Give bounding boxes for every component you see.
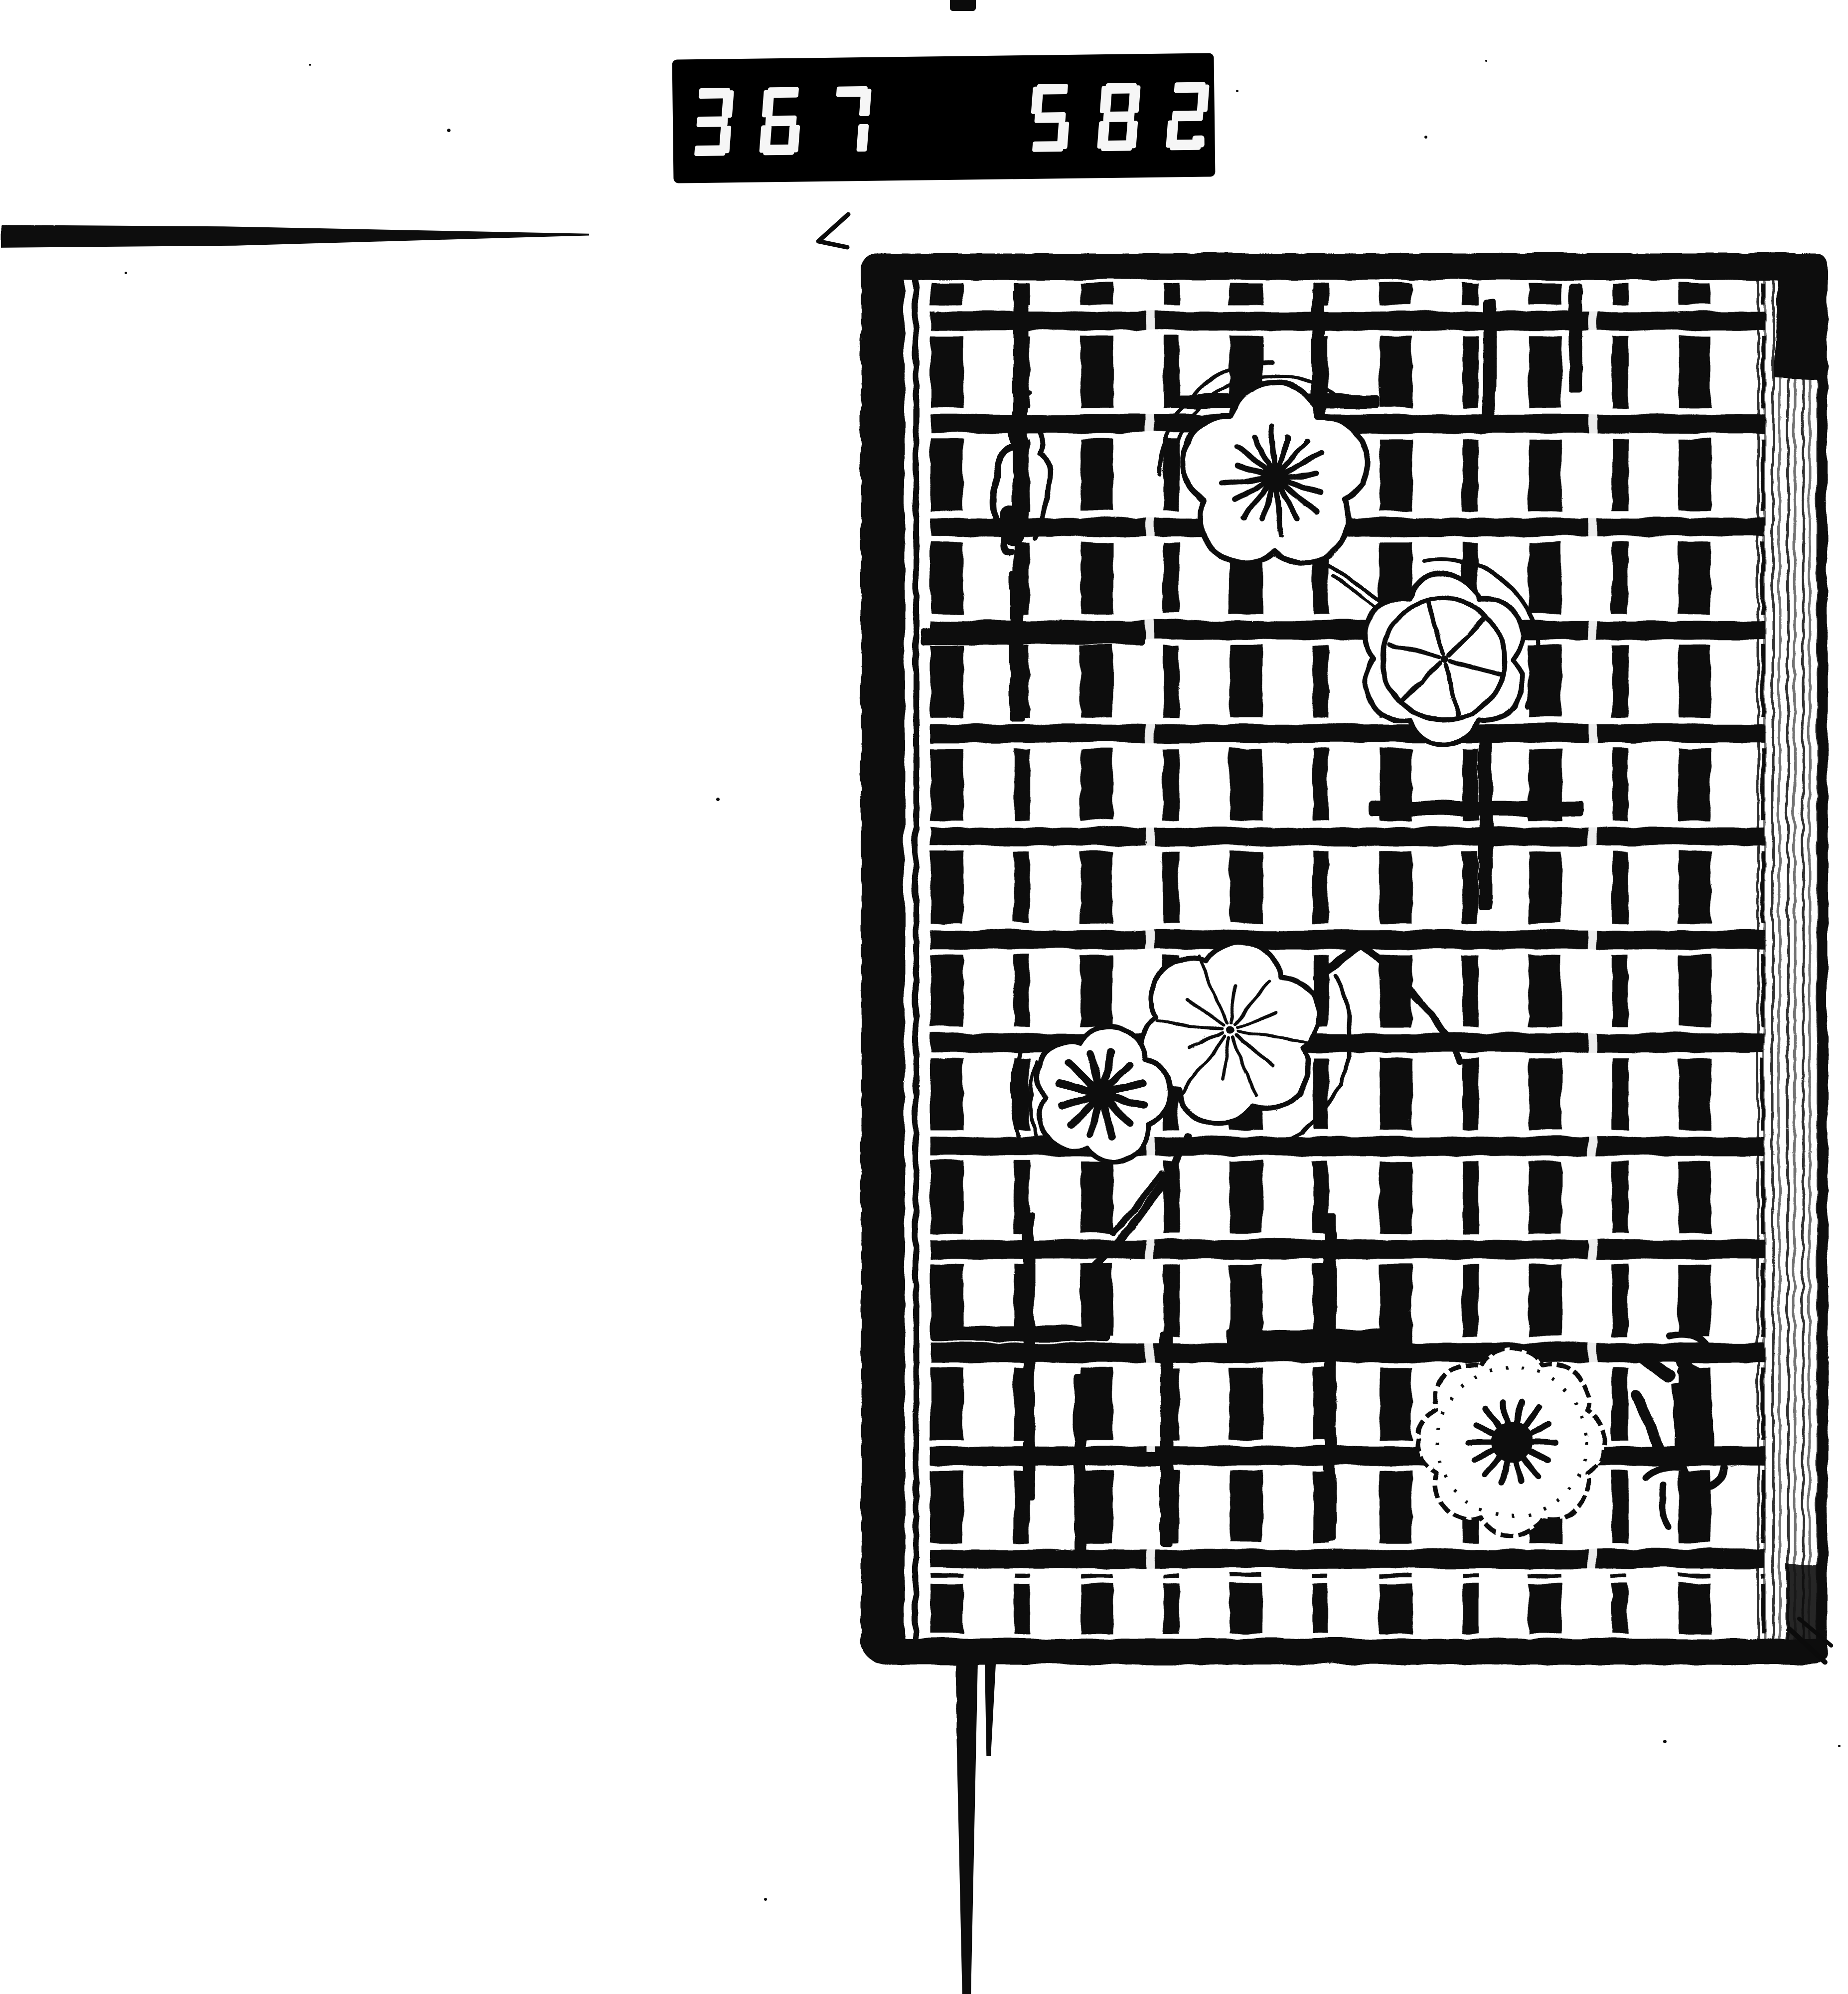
binding-dark-corner-top bbox=[1773, 272, 1820, 378]
digit-segment bbox=[722, 90, 734, 118]
cover-left-edge bbox=[860, 252, 904, 1663]
signature-mark bbox=[1645, 1465, 1725, 1486]
signature-mark bbox=[1636, 1352, 1668, 1375]
cover-bottom-edge bbox=[860, 1638, 1827, 1663]
leaf-stroke bbox=[1418, 998, 1459, 1060]
cover-motifs bbox=[860, 252, 1827, 1663]
digit-segment bbox=[1128, 85, 1141, 113]
cover-binding-edge bbox=[1756, 252, 1827, 1663]
signature-mark bbox=[1672, 1380, 1713, 1461]
digit-segment bbox=[694, 145, 726, 156]
ink-speck bbox=[309, 64, 311, 66]
seven-segment-digit bbox=[690, 88, 734, 156]
ink-speck bbox=[1424, 136, 1427, 139]
leaf-stroke bbox=[1359, 944, 1419, 999]
spine-tail-line-short bbox=[985, 1664, 996, 1756]
ink-speck bbox=[1663, 1740, 1667, 1743]
counter-digits-left bbox=[692, 86, 870, 156]
registration-chevron-mark bbox=[811, 209, 857, 255]
digit-segment bbox=[856, 124, 869, 152]
digit-segment bbox=[1172, 111, 1204, 122]
twig-mark bbox=[998, 503, 1024, 545]
digit-segment bbox=[1032, 141, 1064, 152]
counter-digits-right bbox=[1030, 82, 1208, 152]
digit-segment bbox=[1031, 87, 1044, 114]
stamen-burst-top-ray bbox=[1270, 424, 1274, 467]
leaf-stroke bbox=[1316, 941, 1362, 977]
signature-mark bbox=[1635, 1394, 1663, 1458]
ink-speck bbox=[764, 1898, 767, 1901]
twig-mark bbox=[1034, 417, 1049, 537]
digit-segment bbox=[1103, 111, 1135, 122]
ink-speck bbox=[1485, 60, 1487, 62]
margin-rule-line bbox=[0, 223, 589, 249]
frame-counter-label bbox=[672, 53, 1216, 183]
twig-mark bbox=[1015, 391, 1029, 401]
blossom-double-outline bbox=[1012, 1049, 1020, 1147]
ink-speck bbox=[716, 798, 720, 801]
cover-inner-border-line bbox=[912, 269, 918, 1643]
counter-decimal-point bbox=[1192, 136, 1204, 148]
ink-speck bbox=[1236, 90, 1238, 92]
scanned-document-page bbox=[0, 0, 1848, 1994]
seven-segment-digit bbox=[759, 87, 803, 155]
signature-mark bbox=[1661, 1484, 1668, 1526]
book-cover-scan bbox=[860, 252, 1827, 1663]
seven-segment-digit bbox=[1097, 83, 1141, 151]
seven-segment-digit bbox=[828, 86, 872, 155]
digit-segment bbox=[762, 90, 774, 117]
digit-segment bbox=[859, 89, 872, 116]
stamen-rays-cluster-large-core bbox=[1225, 1026, 1232, 1034]
ink-speck bbox=[447, 129, 451, 132]
ink-speck bbox=[125, 272, 127, 274]
spine-tail-line bbox=[955, 1661, 978, 1994]
digit-segment bbox=[787, 125, 800, 153]
ink-speck bbox=[1838, 1745, 1841, 1747]
digit-segment bbox=[1100, 86, 1112, 113]
film-edge-tab bbox=[950, 0, 976, 11]
book-cover-art bbox=[860, 252, 1827, 1663]
digit-segment bbox=[1197, 84, 1210, 112]
digit-segment bbox=[1097, 121, 1109, 149]
stamen-burst-top-ray bbox=[1284, 474, 1315, 476]
branch-stroke bbox=[1081, 1274, 1086, 1309]
cover-top-edge bbox=[860, 252, 1827, 279]
seven-segment-digit bbox=[1028, 84, 1072, 152]
